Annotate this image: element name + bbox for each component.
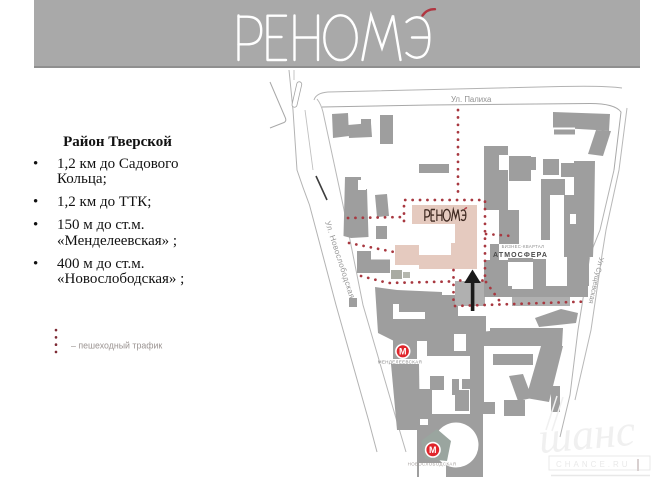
svg-text:Ул Сущевская: Ул Сущевская [587, 256, 606, 304]
svg-text:М: М [429, 445, 437, 455]
svg-text:БИЗНЕС-КВАРТАЛ: БИЗНЕС-КВАРТАЛ [502, 244, 545, 249]
svg-text:шанс: шанс [537, 406, 638, 463]
svg-text:АТМОСФЕРА: АТМОСФЕРА [493, 252, 548, 259]
svg-text:МЕНДЕЛЕЕВСКАЯ: МЕНДЕЛЕЕВСКАЯ [378, 359, 422, 364]
svg-text:НОВОСЛОБОДСКАЯ: НОВОСЛОБОДСКАЯ [408, 461, 457, 466]
svg-text:CHANCE.RU: CHANCE.RU [556, 460, 631, 469]
svg-text:М: М [399, 347, 407, 357]
svg-text:Ул. Палиха: Ул. Палиха [451, 95, 492, 104]
